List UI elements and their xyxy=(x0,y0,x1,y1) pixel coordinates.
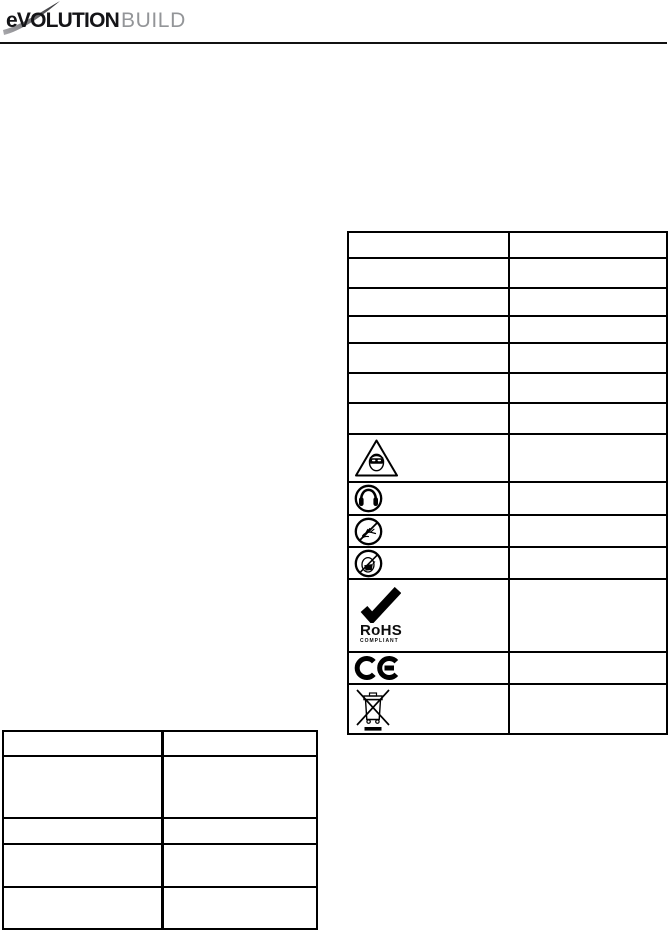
table-row xyxy=(4,888,316,928)
rohs-title-text: RoHS xyxy=(360,624,402,638)
spec-label-cell xyxy=(4,757,164,817)
description-cell xyxy=(510,344,666,372)
table-row xyxy=(349,483,666,516)
table-row xyxy=(349,404,666,435)
symbol-cell xyxy=(349,653,510,683)
dust-mask-warning-icon xyxy=(354,549,383,578)
description-cell xyxy=(510,580,666,651)
table-row xyxy=(4,757,316,819)
description-cell xyxy=(510,233,666,257)
wear-ear-protection-icon xyxy=(354,484,383,513)
symbols-table: RoHS COMPLIANT xyxy=(347,231,668,735)
description-cell xyxy=(510,685,666,733)
description-cell xyxy=(510,435,666,481)
ce-mark-icon xyxy=(354,655,399,681)
symbol-cell: RoHS COMPLIANT xyxy=(349,580,510,651)
symbol-cell xyxy=(349,374,510,402)
table-row xyxy=(349,435,666,483)
description-cell xyxy=(510,259,666,287)
description-cell xyxy=(510,653,666,683)
logo-secondary-text: BUILD xyxy=(121,9,186,32)
description-cell xyxy=(510,548,666,578)
logo-wordmark: eVOLUTIONBUILD xyxy=(6,6,186,38)
table-row xyxy=(349,374,666,404)
spec-table xyxy=(2,730,318,930)
symbol-cell xyxy=(349,516,510,546)
symbol-cell xyxy=(349,548,510,578)
spec-value-cell xyxy=(164,732,316,755)
symbol-cell xyxy=(349,404,510,433)
table-row xyxy=(4,819,316,845)
symbol-cell xyxy=(349,233,510,257)
table-row xyxy=(4,732,316,757)
do-not-touch-icon xyxy=(354,517,383,546)
table-row xyxy=(349,685,666,733)
brand-logo: eVOLUTIONBUILD xyxy=(6,6,186,36)
description-cell xyxy=(510,317,666,342)
description-cell xyxy=(510,483,666,514)
table-row xyxy=(349,548,666,580)
table-row xyxy=(349,233,666,259)
spec-value-cell xyxy=(164,888,316,928)
rohs-subtitle-text: COMPLIANT xyxy=(360,638,399,644)
rohs-compliant-icon: RoHS COMPLIANT xyxy=(354,587,402,644)
description-cell xyxy=(510,374,666,402)
manual-page: { "page": { "type": "instruction-manual-… xyxy=(0,0,670,931)
table-row xyxy=(349,317,666,344)
description-cell xyxy=(510,289,666,315)
description-cell xyxy=(510,404,666,433)
spec-label-cell xyxy=(4,819,164,843)
weee-crossed-bin-icon xyxy=(354,687,392,731)
symbol-cell xyxy=(349,685,510,733)
symbol-cell xyxy=(349,259,510,287)
rohs-checkmark-icon xyxy=(360,587,401,623)
table-row xyxy=(4,845,316,888)
spec-label-cell xyxy=(4,888,164,928)
spec-label-cell xyxy=(4,732,164,755)
table-row xyxy=(349,344,666,374)
spec-value-cell xyxy=(164,845,316,886)
spec-label-cell xyxy=(4,845,164,886)
table-row xyxy=(349,259,666,289)
symbol-cell xyxy=(349,289,510,315)
table-row: RoHS COMPLIANT xyxy=(349,580,666,653)
symbol-cell xyxy=(349,317,510,342)
logo-primary-text: eVOLUTION xyxy=(6,9,119,32)
table-row xyxy=(349,653,666,685)
wear-eye-protection-icon xyxy=(354,438,399,478)
spec-value-cell xyxy=(164,757,316,817)
symbol-cell xyxy=(349,435,510,481)
table-row xyxy=(349,289,666,317)
table-row xyxy=(349,516,666,548)
header-divider xyxy=(0,42,667,44)
symbol-cell xyxy=(349,344,510,372)
symbol-cell xyxy=(349,483,510,514)
description-cell xyxy=(510,516,666,546)
spec-value-cell xyxy=(164,819,316,843)
